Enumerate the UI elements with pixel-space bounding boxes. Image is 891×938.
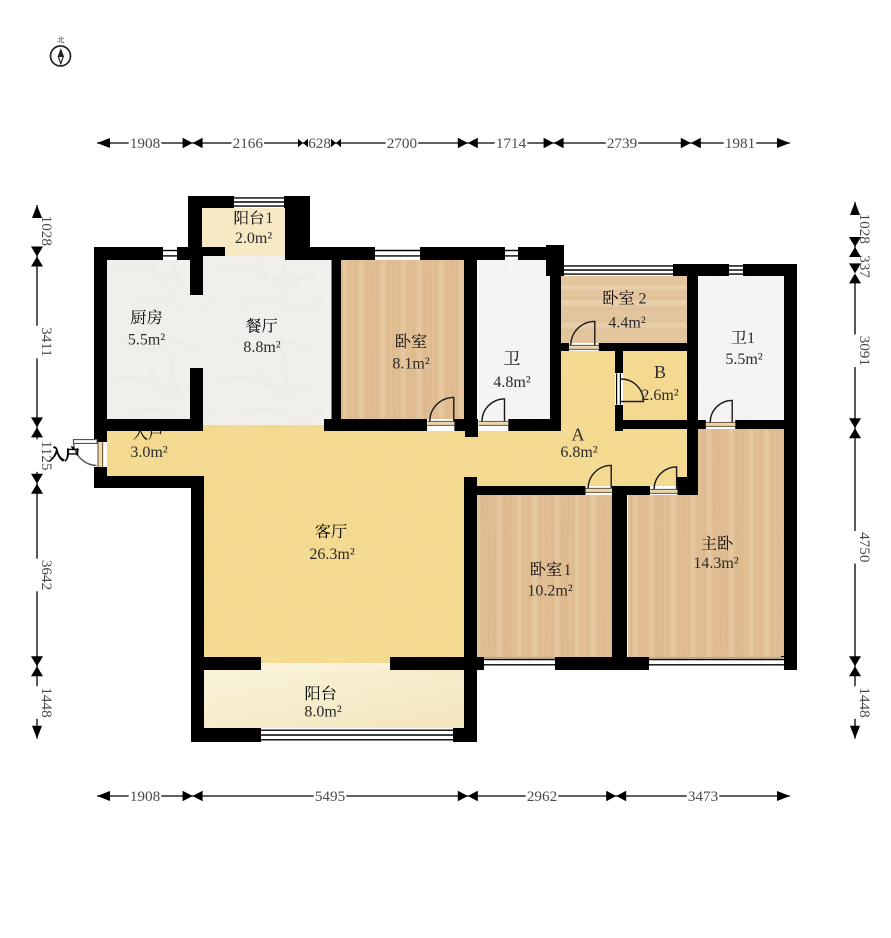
- svg-text:10.2m²: 10.2m²: [527, 582, 572, 599]
- svg-text:5495: 5495: [315, 788, 345, 805]
- svg-text:5.5m²: 5.5m²: [725, 351, 762, 368]
- svg-text:14.3m²: 14.3m²: [693, 555, 738, 572]
- svg-text:2.6m²: 2.6m²: [641, 387, 678, 404]
- svg-text:5.5m²: 5.5m²: [128, 331, 165, 348]
- svg-text:3473: 3473: [688, 788, 718, 805]
- svg-text:337: 337: [856, 255, 873, 278]
- svg-text:2739: 2739: [607, 135, 637, 152]
- svg-text:3411: 3411: [38, 327, 55, 357]
- svg-text:1981: 1981: [725, 135, 755, 152]
- svg-text:628: 628: [308, 135, 331, 152]
- svg-text:8.8m²: 8.8m²: [243, 339, 280, 356]
- svg-text:2: 2: [639, 290, 647, 307]
- svg-text:1: 1: [564, 562, 572, 579]
- svg-text:4750: 4750: [856, 532, 873, 563]
- svg-text:1: 1: [747, 330, 755, 347]
- svg-text:A: A: [572, 425, 585, 445]
- svg-text:2962: 2962: [527, 788, 557, 805]
- svg-text:3.0m²: 3.0m²: [130, 444, 167, 461]
- svg-text:1908: 1908: [130, 135, 161, 152]
- svg-text:2700: 2700: [387, 135, 418, 152]
- svg-text:1908: 1908: [130, 788, 161, 805]
- svg-text:8.1m²: 8.1m²: [392, 355, 429, 372]
- svg-text:3642: 3642: [38, 560, 55, 590]
- svg-text:2.0m²: 2.0m²: [235, 230, 272, 247]
- svg-text:1448: 1448: [856, 687, 873, 718]
- svg-text:1028: 1028: [856, 214, 873, 245]
- svg-text:1125: 1125: [38, 441, 55, 471]
- svg-text:1448: 1448: [38, 687, 55, 718]
- svg-text:1028: 1028: [38, 216, 55, 247]
- svg-text:1: 1: [265, 210, 273, 227]
- svg-text:2166: 2166: [233, 135, 264, 152]
- svg-text:B: B: [654, 362, 666, 382]
- svg-text:1714: 1714: [496, 135, 527, 152]
- svg-text:3091: 3091: [856, 336, 873, 366]
- svg-text:8.0m²: 8.0m²: [304, 703, 341, 720]
- svg-text:4.8m²: 4.8m²: [493, 374, 530, 391]
- svg-text:26.3m²: 26.3m²: [309, 546, 354, 563]
- svg-text:6.8m²: 6.8m²: [560, 444, 597, 461]
- svg-text:4.4m²: 4.4m²: [608, 314, 645, 331]
